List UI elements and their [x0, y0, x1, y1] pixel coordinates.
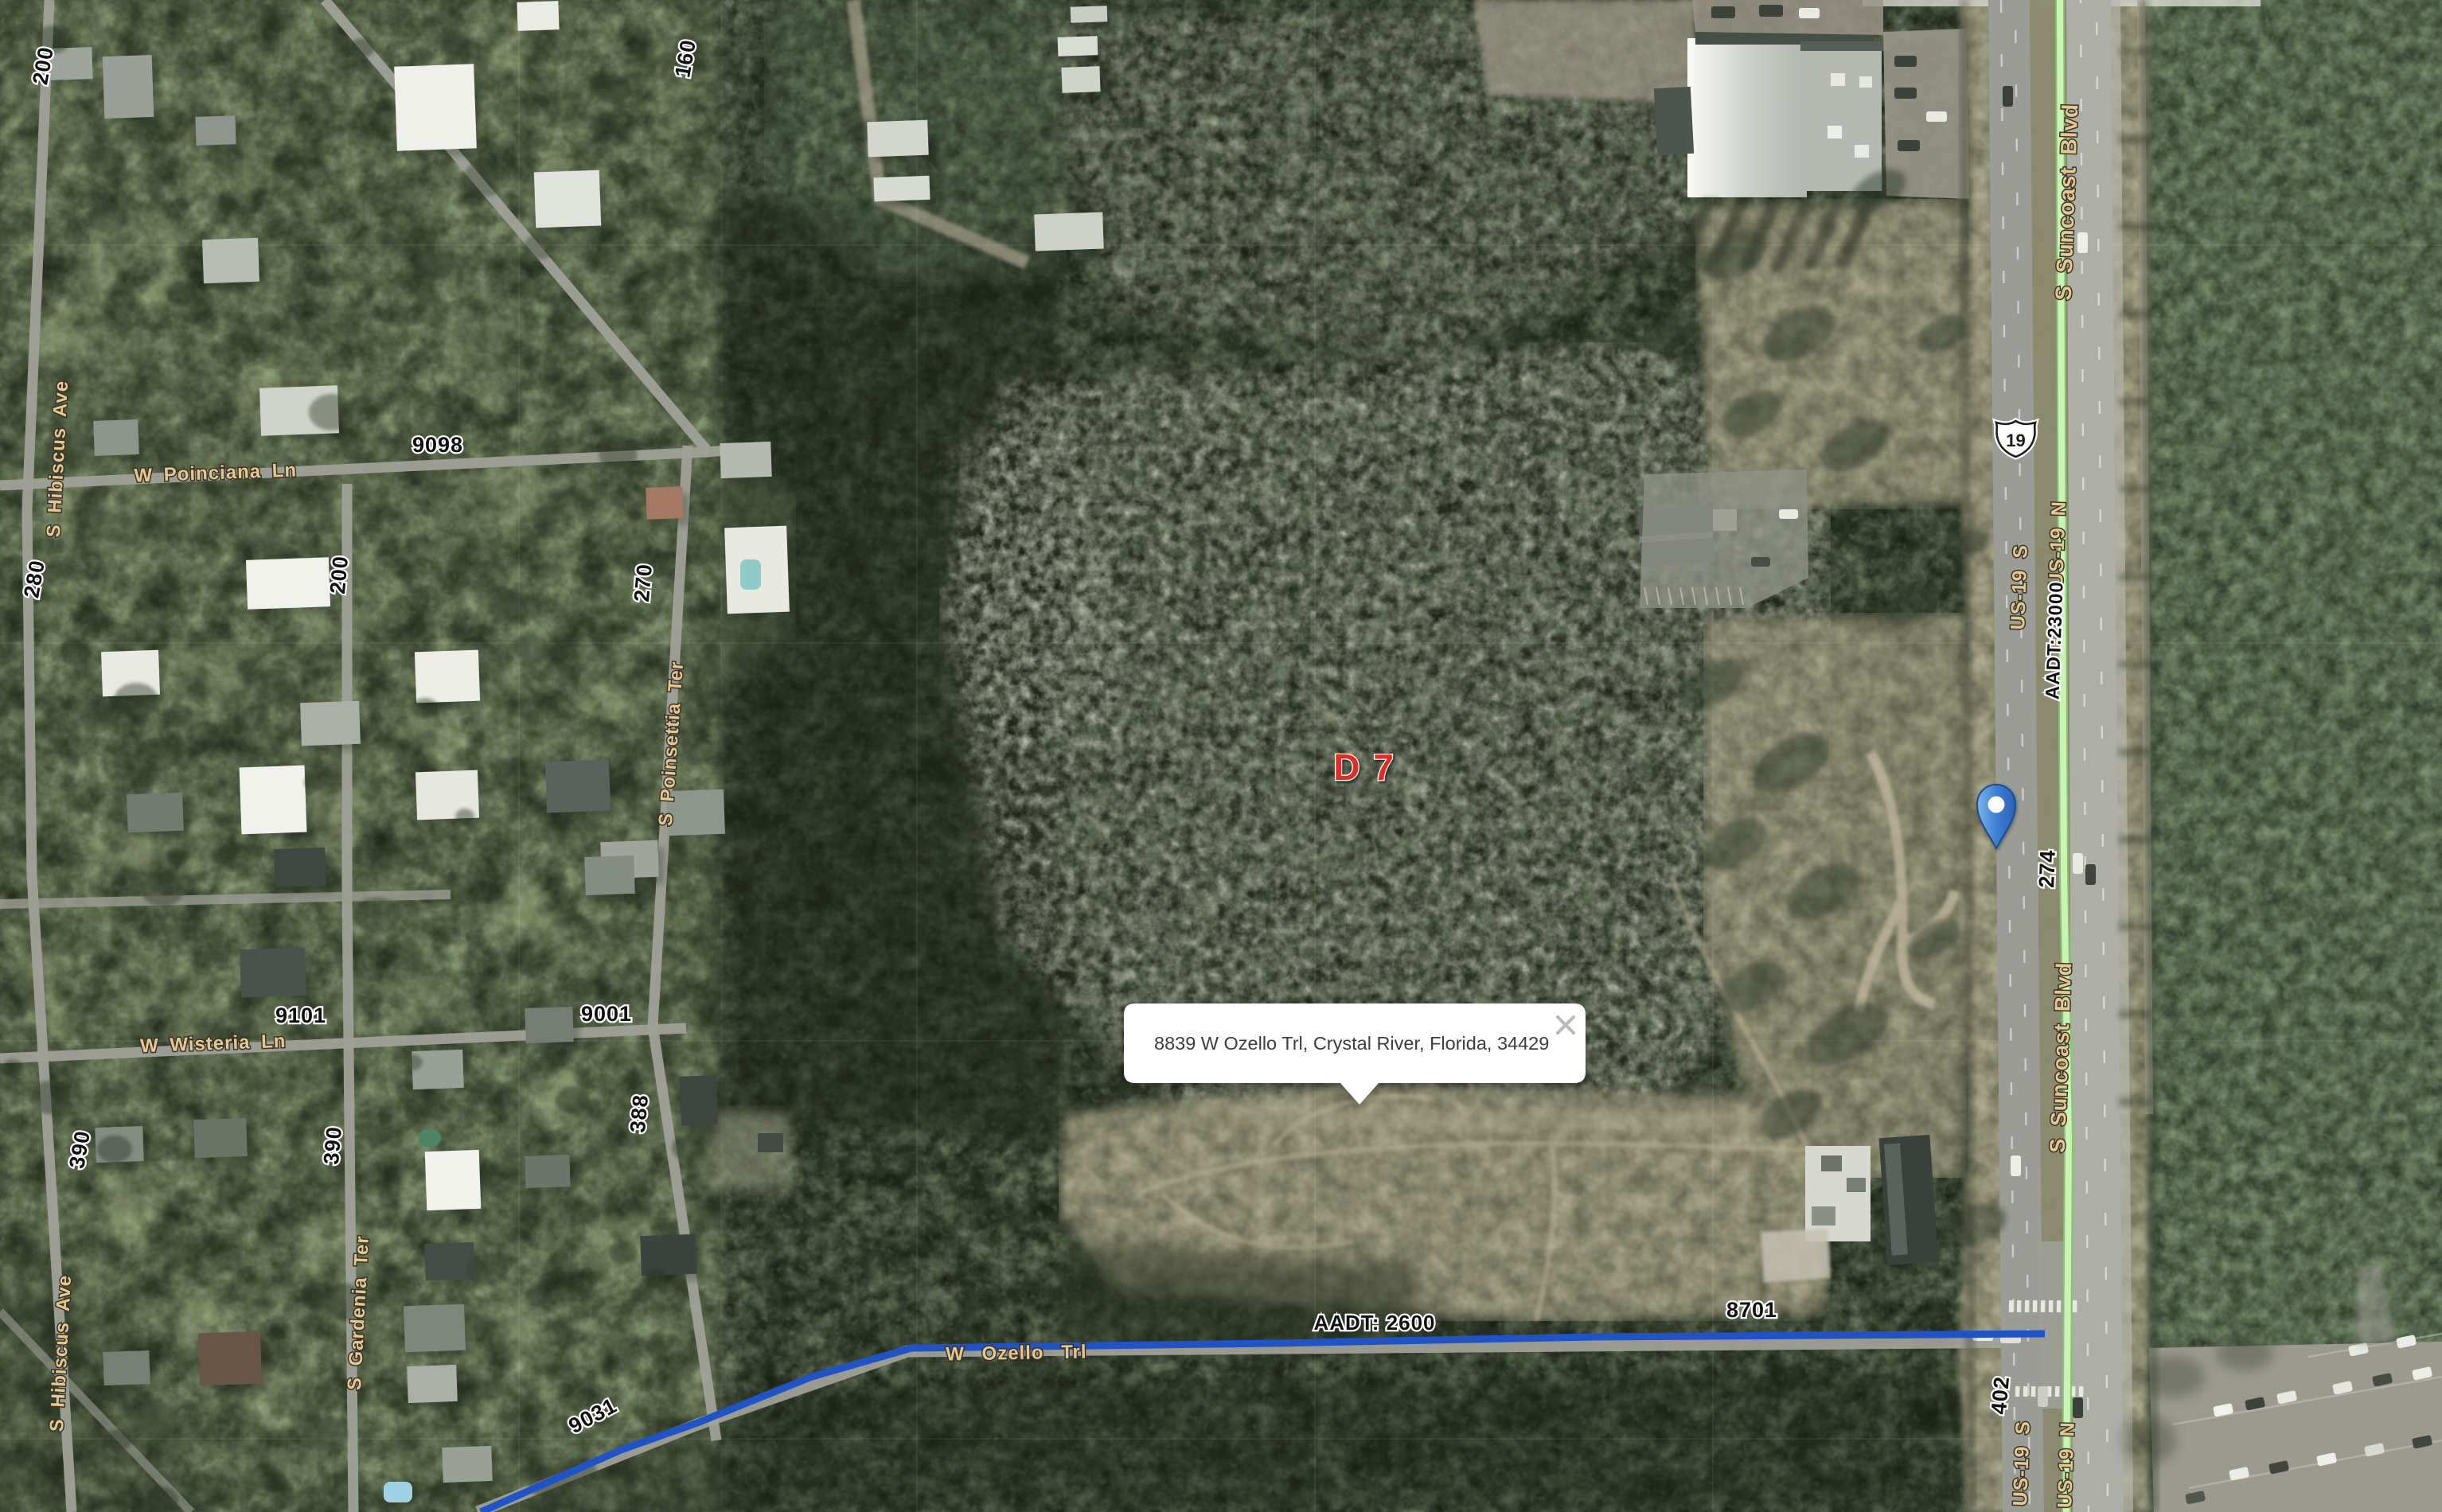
svg-text:9098: 9098 — [412, 433, 463, 457]
svg-text:200: 200 — [326, 555, 353, 594]
svg-text:19: 19 — [2006, 431, 2025, 450]
svg-text:9101: 9101 — [275, 1003, 326, 1027]
svg-text:390: 390 — [319, 1125, 346, 1165]
svg-text:AADT:23000: AADT:23000 — [2042, 581, 2067, 700]
svg-text:US-19 S: US-19 S — [2009, 1420, 2034, 1506]
svg-text:8839 W Ozello Trl, Crystal Riv: 8839 W Ozello Trl, Crystal River, Florid… — [1154, 1033, 1549, 1054]
svg-text:D 7: D 7 — [1333, 746, 1395, 788]
svg-text:388: 388 — [626, 1093, 653, 1133]
svg-text:AADT: 2600: AADT: 2600 — [1313, 1311, 1435, 1335]
svg-text:US-19 N: US-19 N — [2054, 1421, 2079, 1509]
svg-text:US-19 N: US-19 N — [2045, 501, 2070, 588]
svg-text:8701: 8701 — [1726, 1298, 1777, 1322]
svg-text:9001: 9001 — [581, 1002, 632, 1026]
svg-text:270: 270 — [630, 563, 657, 602]
svg-text:402: 402 — [1987, 1375, 2014, 1415]
svg-text:W Ozello Trl: W Ozello Trl — [946, 1341, 1087, 1365]
svg-text:US-19 S: US-19 S — [2007, 544, 2032, 630]
svg-text:274: 274 — [2034, 849, 2060, 888]
